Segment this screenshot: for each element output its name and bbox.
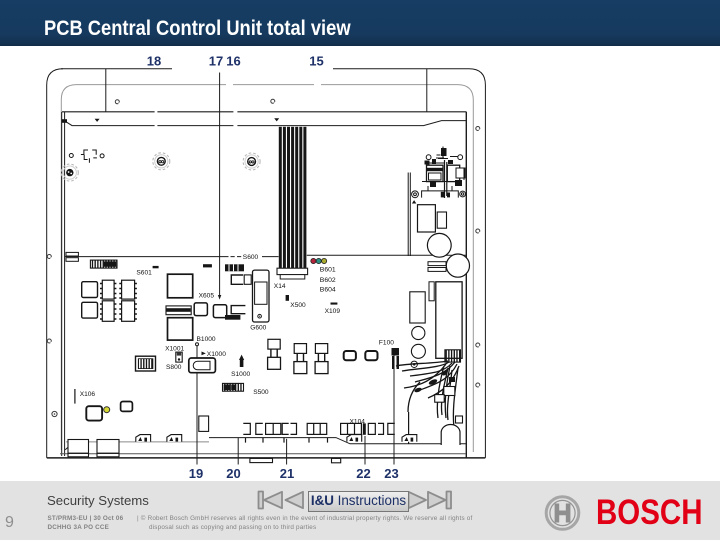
- svg-text:BOSCH: BOSCH: [596, 493, 703, 532]
